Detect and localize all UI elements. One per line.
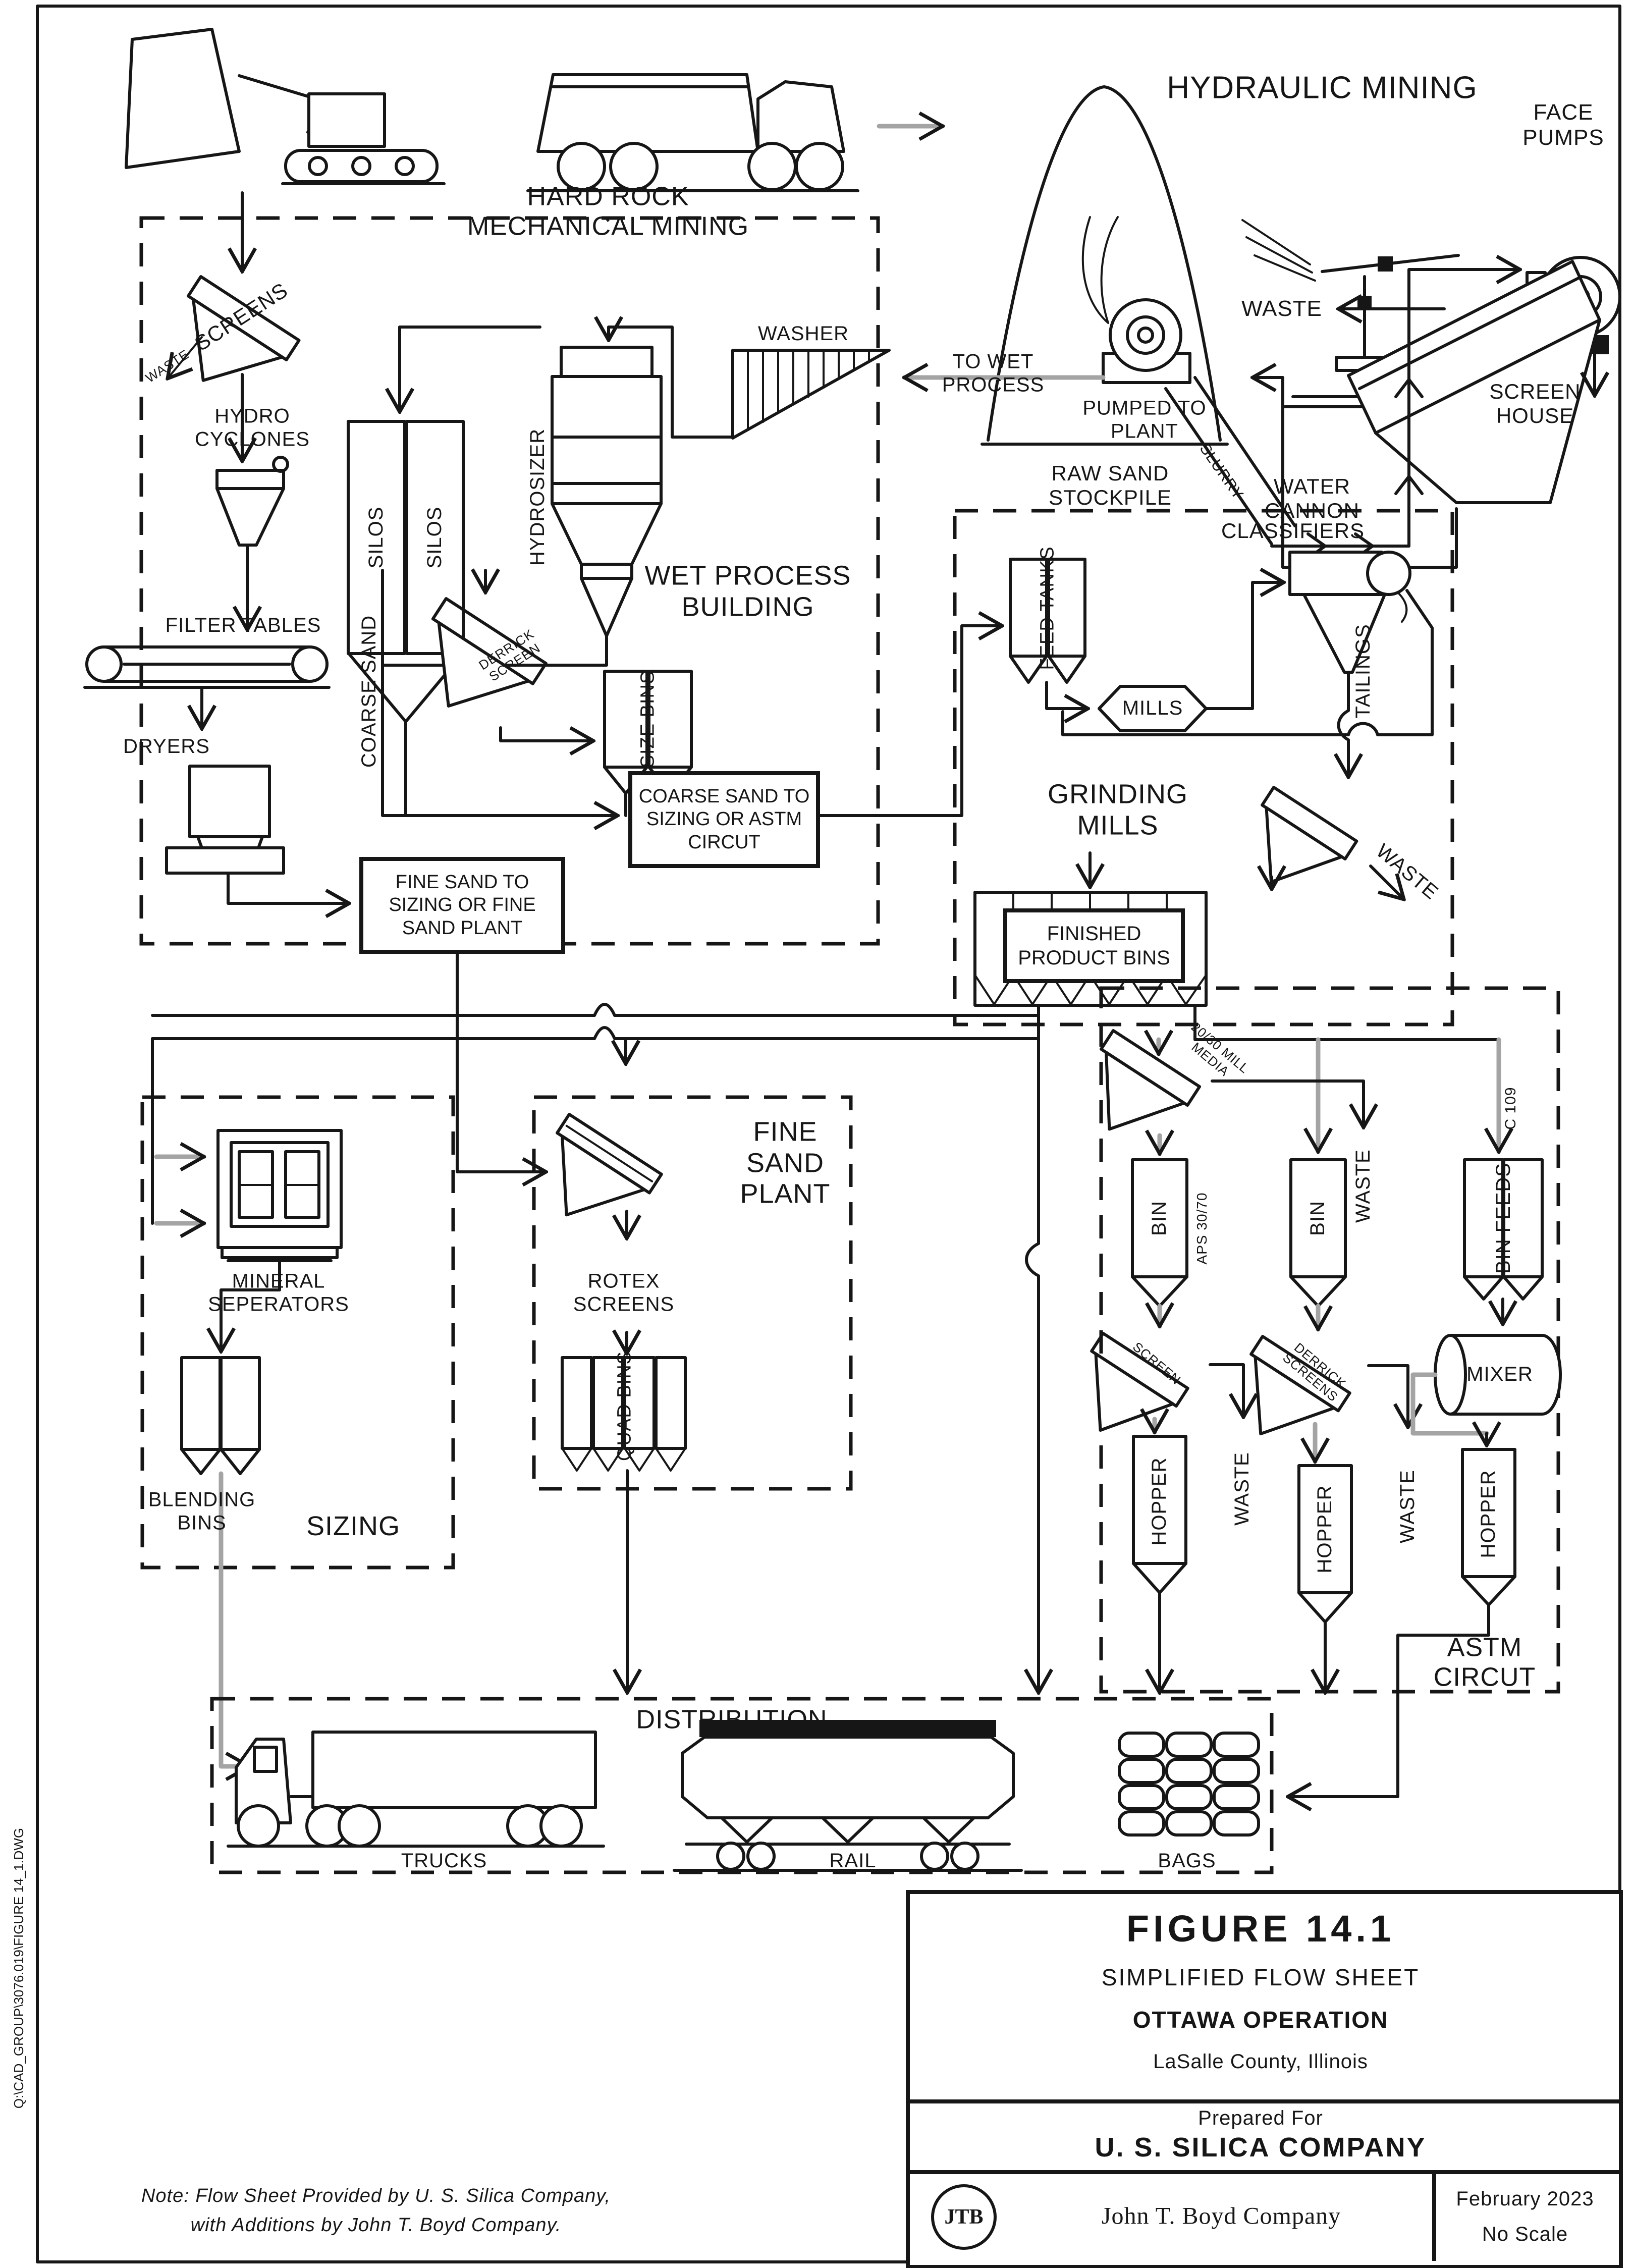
- dump-truck-icon: [528, 75, 858, 191]
- trucks-label: TRUCKS: [378, 1850, 510, 1873]
- finished-product-bins-box: FINISHED PRODUCT BINS: [1003, 908, 1185, 983]
- filter-table-icon: [85, 647, 329, 687]
- bags-icon: [1119, 1733, 1259, 1835]
- mineral-seperators-label: MINERAL SEPERATORS: [193, 1270, 364, 1316]
- feed-tanks-label: FEED TANKS: [1037, 546, 1058, 670]
- tailings-label: TAILINGS: [1352, 624, 1375, 718]
- aps-label: APS 30/70: [1194, 1193, 1210, 1265]
- flow-sheet-page: HARD ROCK MECHANICAL MINING HYDRAULIC MI…: [0, 0, 1633, 2268]
- astm-bin-left-label: BIN: [1148, 1201, 1171, 1236]
- coarse-sand-routing-text: COARSE SAND TO SIZING OR ASTM CIRCUT: [632, 785, 816, 854]
- grinding-waste-screen-icon: [1230, 787, 1357, 909]
- astm-bin-mid-label: BIN: [1307, 1201, 1330, 1236]
- c109-label: C 109: [1502, 1087, 1519, 1129]
- coarse-to-grinding-line: [812, 626, 1002, 816]
- dryers-label: DRYERS: [111, 735, 222, 759]
- quad-bins-label: QUAD BINS: [614, 1351, 635, 1461]
- prepared-for-label: Prepared For: [1109, 2107, 1412, 2130]
- rotex-screen-icon: [522, 1114, 661, 1246]
- blending-bins-icon: [182, 1358, 259, 1474]
- pumped-to-plant-label: PUMPED TO PLANT: [1069, 397, 1220, 443]
- hydro-cyclones-label: HYDRO CYCLONES: [187, 405, 318, 451]
- mills-label: MILLS: [1107, 697, 1198, 720]
- astm-circut-label: ASTM CIRCUT: [1401, 1633, 1568, 1693]
- astm-hopper-left-label: HOPPER: [1148, 1457, 1171, 1546]
- astm-waste-top-label: WASTE: [1352, 1149, 1375, 1223]
- location-name: LaSalle County, Illinois: [1008, 2050, 1513, 2074]
- screen-house-label: SCREEN HOUSE: [1475, 380, 1596, 428]
- astm-hopper-mid-label: HOPPER: [1314, 1485, 1337, 1574]
- fine-sand-plant-label: FINE SAND PLANT: [720, 1117, 851, 1210]
- bags-label: BAGS: [1136, 1850, 1237, 1873]
- blending-bins-label: BLENDING BINS: [136, 1488, 267, 1534]
- truck-icon: [228, 1732, 604, 1846]
- fine-to-plants-line: [457, 947, 546, 1172]
- railcar-icon: [674, 1720, 1021, 1870]
- finished-product-bins-text: FINISHED PRODUCT BINS: [1007, 922, 1181, 970]
- excavator-icon: [126, 29, 444, 184]
- hydrosizer-label: HYDROSIZER: [526, 428, 550, 566]
- coarse-sand-label: COARSE SAND: [358, 615, 381, 768]
- raw-sand-stockpile-label: RAW SAND STOCKPILE: [1024, 461, 1196, 510]
- hydraulic-mining-label: HYDRAULIC MINING: [1095, 71, 1549, 106]
- size-bins-label: SIZE BINS: [637, 671, 659, 768]
- firm-name: John T. Boyd Company: [1029, 2203, 1413, 2231]
- face-pumps-label: FACE PUMPS: [1510, 100, 1616, 150]
- waste-screenhouse-label: WASTE: [1226, 296, 1337, 321]
- mill-media-screen-icon: [1067, 1031, 1200, 1158]
- date-label: February 2023: [1439, 2188, 1611, 2211]
- silos-right-label: SILOS: [423, 507, 447, 569]
- wet-process-building-label: WET PROCESS BUILDING: [637, 560, 859, 622]
- mineral-separators-icon: [218, 1130, 341, 1261]
- note-line-1: Note: Flow Sheet Provided by U. S. Silic…: [48, 2185, 704, 2207]
- to-wet-process-label: TO WET PROCESS: [930, 350, 1056, 396]
- flow-bus-lines: [152, 1004, 1039, 1693]
- title-block-divider-1: [906, 2099, 1619, 2103]
- note-line-2: with Additions by John T. Boyd Company.: [48, 2215, 704, 2236]
- silos-left-label: SILOS: [365, 507, 388, 569]
- astm-waste-mid-label: WASTE: [1396, 1470, 1420, 1543]
- rotex-screens-label: ROTEX SCREENS: [558, 1270, 689, 1316]
- bin-feeds-label: BIN FEEDS: [1492, 1163, 1515, 1274]
- coarse-sand-routing-box: COARSE SAND TO SIZING OR ASTM CIRCUT: [628, 771, 820, 868]
- title-block-divider-3: [1432, 2170, 1436, 2261]
- astm-waste-left-label: WASTE: [1231, 1452, 1254, 1526]
- washer-label: WASHER: [743, 322, 864, 346]
- company-name: U. S. SILICA COMPANY: [983, 2132, 1538, 2164]
- hard-rock-mining-label: HARD ROCK MECHANICAL MINING: [442, 182, 775, 242]
- jtb-logo: JTB: [931, 2184, 997, 2250]
- rail-label: RAIL: [802, 1850, 903, 1873]
- scale-label: No Scale: [1439, 2223, 1611, 2246]
- jtb-logo-text: JTB: [944, 2205, 983, 2229]
- file-path-label: Q:\CAD_GROUP\3076.019\FIGURE 14_1.DWG: [12, 1828, 27, 2109]
- astm-hopper-right-label: HOPPER: [1477, 1470, 1500, 1558]
- grinding-mills-label: GRINDING MILLS: [1035, 779, 1201, 841]
- figure-number: FIGURE 14.1: [1008, 1908, 1513, 1950]
- filter-tables-label: FILTER TABLES: [137, 614, 349, 637]
- water-cannon-label: WATER CANNON: [1246, 474, 1378, 523]
- distribution-label: DISTRIBUTION: [606, 1705, 858, 1735]
- operation-name: OTTAWA OPERATION: [1008, 2007, 1513, 2033]
- dryer-icon: [167, 766, 284, 873]
- plant-pump-icon: [1103, 300, 1190, 383]
- classifier-icon: [1290, 552, 1410, 672]
- classifiers-label: CLASSIFIERS: [1202, 519, 1384, 543]
- washer-icon: [733, 350, 889, 438]
- fine-sand-routing-text: FINE SAND TO SIZING OR FINE SAND PLANT: [363, 871, 561, 940]
- mixer-label: MIXER: [1449, 1363, 1550, 1386]
- figure-subtitle: SIMPLIFIED FLOW SHEET: [1008, 1964, 1513, 1990]
- hydro-cyclone-icon: [217, 457, 288, 553]
- sizing-label: SIZING: [278, 1511, 429, 1542]
- fine-sand-routing-box: FINE SAND TO SIZING OR FINE SAND PLANT: [359, 857, 565, 954]
- title-block-divider-2: [906, 2170, 1619, 2174]
